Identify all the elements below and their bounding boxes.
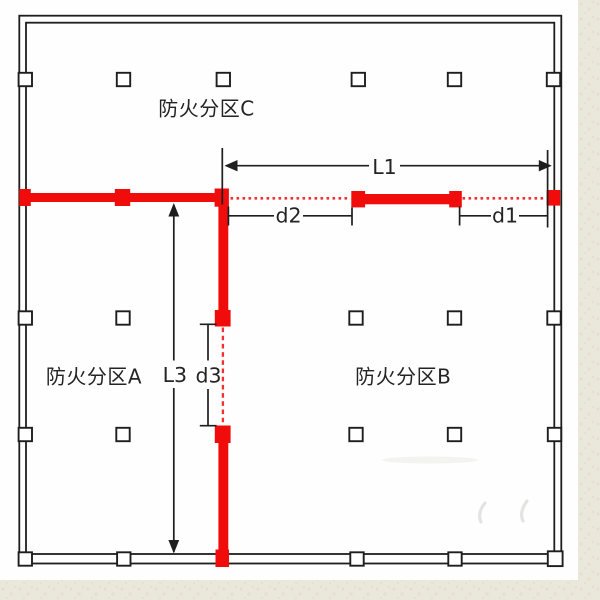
column: [116, 428, 129, 441]
column: [352, 73, 365, 86]
column: [350, 552, 363, 565]
column: [217, 73, 230, 86]
dimension-d2-label: d2: [275, 204, 301, 228]
column: [548, 428, 561, 441]
column: [548, 551, 563, 566]
fire-wall-right-block: [547, 190, 561, 206]
fire-wall-stub: [19, 189, 31, 206]
drawing-canvas: [0, 0, 578, 580]
column: [448, 73, 461, 86]
dimension-l3-label: L3: [163, 363, 187, 387]
fire-wall-stub: [215, 426, 231, 444]
fire-wall-segment-bar: [365, 194, 451, 204]
column: [547, 73, 560, 86]
dimension-l1-label: L1: [372, 155, 396, 179]
column: [117, 73, 130, 86]
column: [19, 552, 32, 565]
zone-b-label: 防火分区B: [355, 365, 451, 389]
fire-wall-stub: [216, 550, 230, 568]
fire-wall-segment-end: [351, 191, 365, 207]
column: [448, 311, 461, 324]
column: [19, 73, 32, 86]
zone-c-label: 防火分区C: [158, 97, 254, 121]
column: [448, 552, 461, 565]
fire-wall-stub: [115, 189, 130, 206]
dimension-d1-label: d1: [492, 204, 518, 228]
column: [19, 311, 32, 324]
column: [116, 311, 129, 324]
column: [117, 552, 130, 565]
column: [19, 428, 32, 441]
fire-wall-vertical-upper: [218, 202, 228, 327]
fire-wall-vertical-lower: [218, 443, 228, 553]
column: [547, 311, 560, 324]
watermark-smudge: [382, 457, 478, 464]
column: [349, 311, 362, 324]
fire-wall-stub: [215, 310, 231, 327]
dimension-d3-label: d3: [195, 364, 221, 388]
zone-a-label: 防火分区A: [46, 365, 142, 389]
fire-wall-segment-end: [449, 191, 462, 207]
column: [448, 428, 461, 441]
fire-compartment-diagram: 防火分区C 防火分区A 防火分区B L1 d2 d1 L3 d3: [0, 0, 600, 600]
column: [349, 428, 362, 441]
